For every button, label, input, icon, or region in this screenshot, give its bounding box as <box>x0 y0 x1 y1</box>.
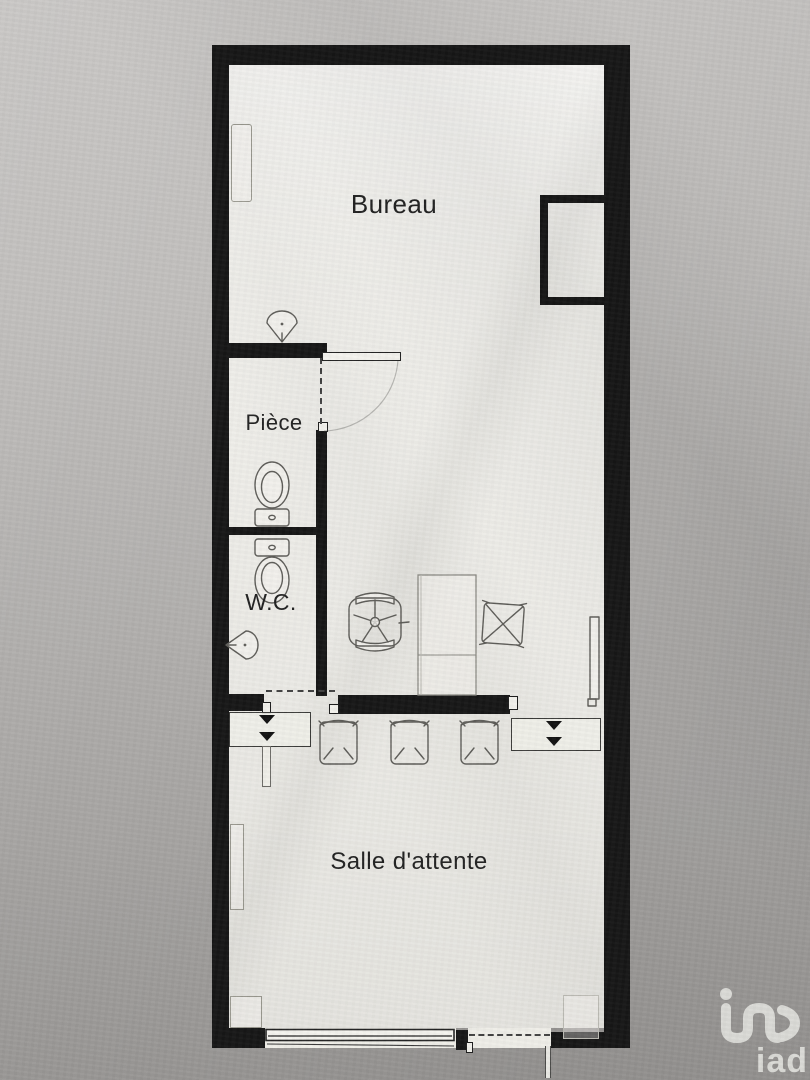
waiting-chair-icon <box>316 714 361 768</box>
arrow-down-icon <box>259 715 275 724</box>
piece-door-swing-arc <box>318 352 408 437</box>
wall-wc-bottom <box>229 694 264 711</box>
arrow-down-icon <box>259 732 275 741</box>
floor-plan-scan: Bureau Pièce W.C. Salle d'attente iad <box>0 0 810 1080</box>
jamb-salle-door <box>508 696 518 710</box>
radiator-salle-icon <box>230 824 244 910</box>
iad-logo: iad <box>700 984 810 1080</box>
arrow-down-icon <box>546 721 562 730</box>
wall-left <box>212 45 229 1048</box>
entrance-door-icon <box>469 1034 550 1036</box>
wall-salle-top <box>338 695 510 714</box>
room-label-wc: W.C. <box>221 589 321 616</box>
visitor-chair-icon <box>476 600 530 652</box>
waiting-chair-icon <box>457 714 502 768</box>
wash-basin-icon <box>263 309 301 344</box>
wall-right <box>604 45 630 1048</box>
piece-door-leaf <box>322 352 401 361</box>
wall-piece-right <box>316 430 327 696</box>
wall-piece-top <box>229 343 327 358</box>
radiator-bureau-icon <box>231 124 252 202</box>
room-label-salle-attente: Salle d'attente <box>309 848 509 876</box>
hall-door-opening <box>266 690 335 692</box>
closet-wall-left <box>540 195 548 305</box>
toilet-piece-icon <box>248 460 296 530</box>
window-icon <box>265 1028 456 1048</box>
desk-icon <box>417 574 478 697</box>
waiting-chair-icon <box>387 714 432 768</box>
bench-leg-icon <box>262 746 271 787</box>
closet-wall-top <box>540 195 604 203</box>
room-label-bureau: Bureau <box>294 189 494 220</box>
entrance-opening <box>468 1028 551 1048</box>
office-chair-icon <box>340 586 410 658</box>
arrow-down-icon <box>546 737 562 746</box>
iad-logo-text: iad <box>700 1044 808 1078</box>
wall-bottom-left <box>212 1028 265 1048</box>
room-label-piece: Pièce <box>224 410 324 436</box>
iad-logo-mark-icon <box>716 986 802 1046</box>
corner-sink-icon <box>224 628 260 662</box>
jamb-hall-right <box>329 704 339 714</box>
wall-top <box>212 45 630 65</box>
entrance-frame-line <box>545 1046 551 1078</box>
cabinet-bottom-right-icon <box>563 995 599 1039</box>
radiator-wall-icon <box>588 616 604 708</box>
closet-wall-bottom <box>540 297 604 305</box>
entrance-jamb-left <box>466 1042 473 1053</box>
cabinet-bottom-left-icon <box>230 996 262 1028</box>
